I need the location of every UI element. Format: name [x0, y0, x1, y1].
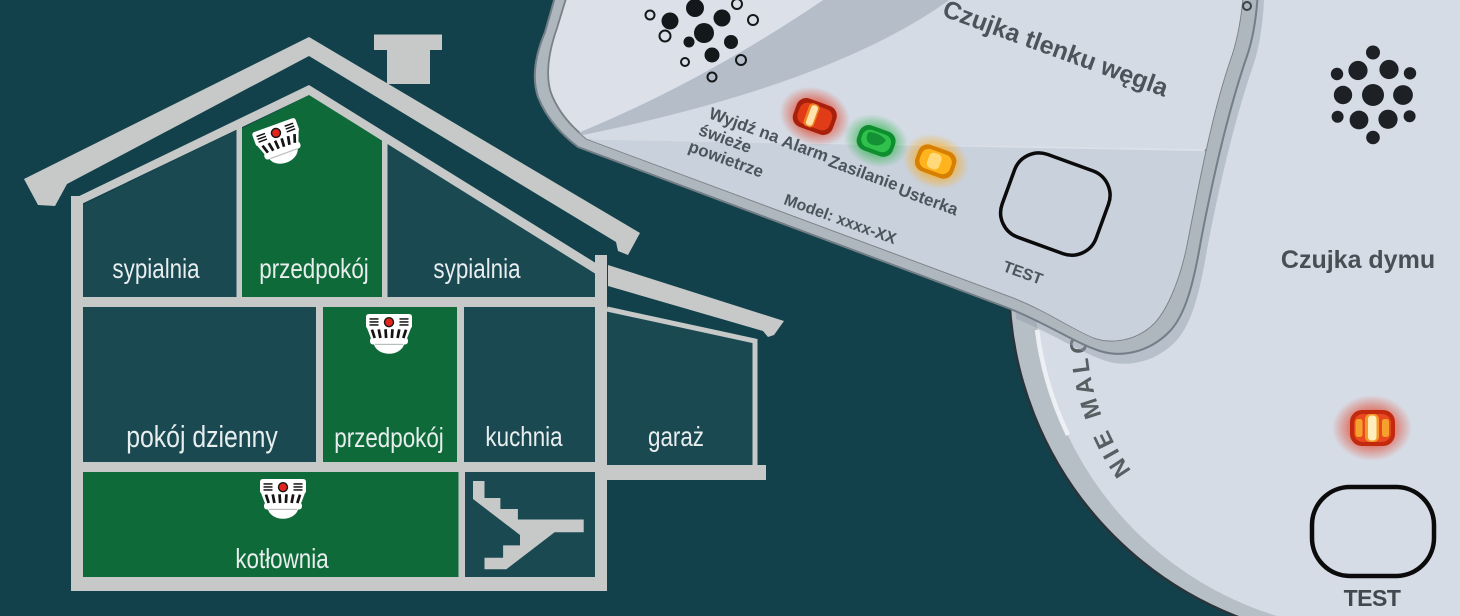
svg-text:Czujka dymu: Czujka dymu: [1281, 246, 1435, 274]
svg-text:kotłownia: kotłownia: [235, 544, 329, 575]
svg-text:przedpokój: przedpokój: [334, 423, 444, 454]
svg-text:garaż: garaż: [648, 422, 704, 453]
svg-text:sypialnia: sypialnia: [112, 254, 200, 285]
svg-text:kuchnia: kuchnia: [485, 422, 563, 453]
svg-text:sypialnia: sypialnia: [433, 254, 521, 285]
svg-text:przedpokój: przedpokój: [259, 254, 369, 285]
svg-text:pokój dzienny: pokój dzienny: [126, 419, 278, 453]
svg-text:TEST: TEST: [1344, 585, 1401, 611]
